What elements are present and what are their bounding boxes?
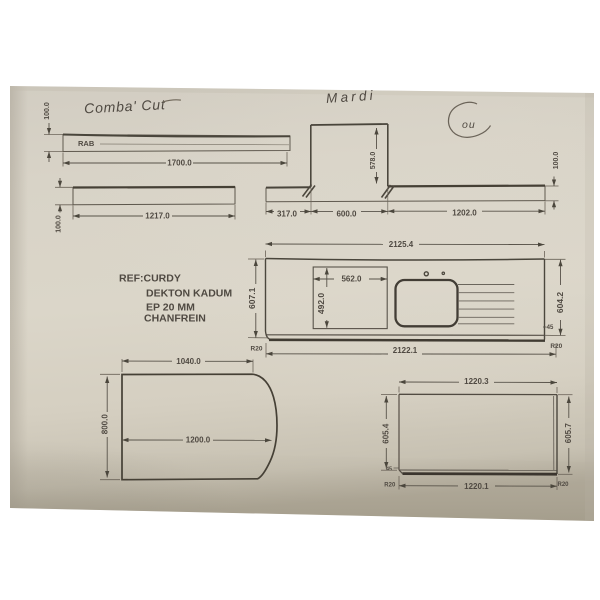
svg-text:R20: R20 bbox=[557, 482, 569, 488]
svg-text:DEKTON KADUM: DEKTON KADUM bbox=[146, 288, 232, 300]
svg-text:100.0: 100.0 bbox=[553, 152, 560, 170]
svg-text:562.0: 562.0 bbox=[341, 275, 362, 284]
svg-text:604.2: 604.2 bbox=[555, 292, 565, 314]
svg-text:2125.4: 2125.4 bbox=[389, 240, 414, 249]
svg-text:1040.0: 1040.0 bbox=[176, 357, 201, 366]
svg-text:492.0: 492.0 bbox=[316, 293, 326, 315]
svg-text:605.4: 605.4 bbox=[382, 423, 391, 444]
svg-text:607.1: 607.1 bbox=[247, 287, 257, 309]
svg-text:1202.0: 1202.0 bbox=[452, 208, 477, 217]
svg-text:2122.1: 2122.1 bbox=[393, 346, 418, 355]
svg-text:CHANFREIN: CHANFREIN bbox=[144, 313, 206, 325]
svg-text:100.0: 100.0 bbox=[44, 102, 51, 120]
svg-text:R20: R20 bbox=[251, 345, 263, 352]
svg-text:578.0: 578.0 bbox=[370, 152, 377, 170]
svg-text:317.0: 317.0 bbox=[277, 209, 298, 218]
svg-text:R20: R20 bbox=[550, 343, 562, 350]
svg-text:100.0: 100.0 bbox=[55, 215, 62, 233]
svg-text:45: 45 bbox=[386, 466, 392, 472]
svg-text:1217.0: 1217.0 bbox=[145, 212, 170, 221]
svg-text:REF:CURDY: REF:CURDY bbox=[119, 273, 181, 285]
svg-text:1200.0: 1200.0 bbox=[186, 436, 211, 445]
svg-text:ou: ou bbox=[462, 119, 476, 131]
svg-text:RAB: RAB bbox=[78, 139, 95, 148]
svg-text:605.7: 605.7 bbox=[564, 423, 573, 444]
svg-text:1220.1: 1220.1 bbox=[464, 482, 489, 491]
svg-text:800.0: 800.0 bbox=[101, 414, 110, 435]
svg-text:R20: R20 bbox=[384, 482, 396, 488]
svg-text:600.0: 600.0 bbox=[336, 209, 357, 218]
svg-text:1220.3: 1220.3 bbox=[464, 377, 489, 386]
svg-text:45: 45 bbox=[547, 325, 554, 331]
svg-text:1700.0: 1700.0 bbox=[167, 159, 192, 168]
